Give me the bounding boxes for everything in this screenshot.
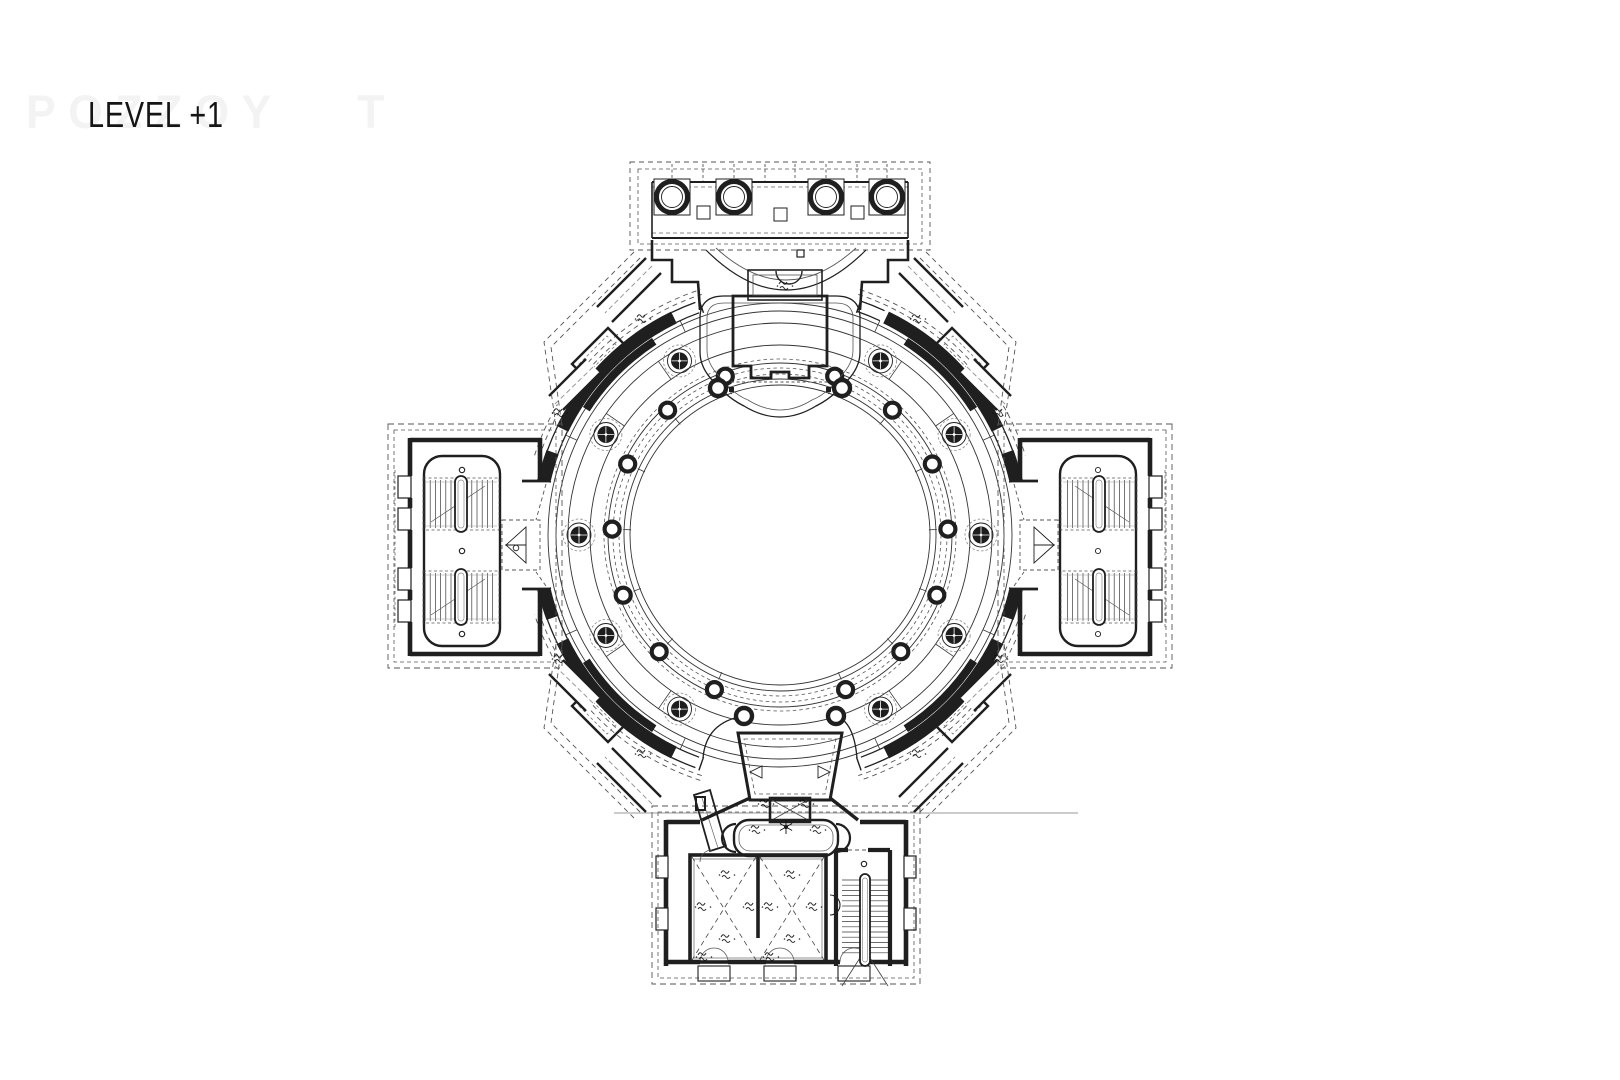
marker-dot xyxy=(719,938,721,940)
passage-splay-dashed xyxy=(536,484,546,586)
rosette-column xyxy=(590,419,622,451)
marker-dot xyxy=(992,658,994,660)
drum-end-cap xyxy=(699,757,704,770)
marker-dot xyxy=(567,658,569,660)
marker-dot xyxy=(821,906,823,908)
marker-dot xyxy=(992,412,994,414)
rosette-center xyxy=(953,433,956,436)
inter-column-pier xyxy=(697,206,710,219)
inner-ring-column xyxy=(940,522,955,537)
rosette-center xyxy=(578,534,581,537)
rosette-center xyxy=(605,634,608,637)
marker-squiggle xyxy=(764,903,772,906)
portico-column xyxy=(869,179,905,215)
gallery-ring xyxy=(556,311,1004,759)
west-stair-wing xyxy=(388,424,562,668)
rosette-column xyxy=(664,693,696,725)
level-marker xyxy=(910,750,927,758)
radial-joint xyxy=(919,588,927,591)
reference-mark xyxy=(459,467,465,473)
marker-dot xyxy=(806,906,808,908)
entrance-pedestal xyxy=(797,250,804,257)
marker-dot xyxy=(910,753,912,755)
level-marker xyxy=(635,315,652,323)
level-marker xyxy=(806,903,823,911)
marker-dot xyxy=(799,874,801,876)
radial-joint xyxy=(566,630,577,635)
radial-joint xyxy=(719,672,722,679)
portico-columns xyxy=(654,179,905,221)
rosette-column xyxy=(938,620,970,652)
inter-column-pier xyxy=(851,206,864,219)
inner-ring-column xyxy=(660,403,675,418)
portico-column xyxy=(808,179,844,215)
drum-window-bay xyxy=(861,748,884,758)
reference-mark xyxy=(513,545,519,551)
radial-joint xyxy=(936,413,954,426)
inner-ring-column xyxy=(885,403,900,418)
reference-mark xyxy=(459,548,465,554)
marker-squiggle xyxy=(698,908,706,911)
rosette-column xyxy=(865,693,897,725)
drum-roof-dashed xyxy=(858,294,1020,456)
level-marker xyxy=(719,871,736,879)
inner-ring-column xyxy=(929,588,944,603)
radial-joint xyxy=(658,691,671,709)
marker-squiggle xyxy=(786,935,794,938)
marker-squiggle xyxy=(721,871,729,874)
wing-wall-fins xyxy=(750,766,830,778)
marker-dot xyxy=(552,658,554,660)
marker-squiggle xyxy=(808,903,816,906)
marker-dot xyxy=(1007,412,1009,414)
neck-cross-brace xyxy=(772,800,808,820)
marker-dot xyxy=(758,803,760,805)
drum-window-bay xyxy=(676,748,699,758)
north-porch-recess-inner xyxy=(753,275,817,295)
gallery-ring xyxy=(630,385,930,685)
stair-flight xyxy=(842,874,888,986)
radial-joint xyxy=(566,435,577,440)
gallery-ring xyxy=(590,345,970,725)
inner-ring-column xyxy=(838,682,853,697)
inner-ring-column xyxy=(620,457,635,472)
reference-mark xyxy=(459,631,465,637)
gallery-ring xyxy=(568,323,992,747)
radial-joint xyxy=(606,413,624,426)
stair-stringer xyxy=(455,569,467,625)
drawing-sheet: POZZOY T LEVEL +1 xyxy=(0,0,1620,1080)
column-block xyxy=(729,387,734,392)
rosette-center xyxy=(678,708,681,711)
inner-ring-column xyxy=(893,644,908,659)
marker-dot xyxy=(758,906,760,908)
wing-roof-dashed-inner xyxy=(394,430,556,662)
marker-squiggle xyxy=(554,409,562,412)
radial-joint xyxy=(667,639,673,645)
radial-joint xyxy=(983,630,994,635)
radial-joint xyxy=(889,691,902,709)
level-marker xyxy=(719,935,736,943)
marker-squiggle xyxy=(745,903,753,906)
marker-squiggle xyxy=(555,414,563,417)
level-marker xyxy=(810,826,827,834)
marker-squiggle xyxy=(638,755,646,758)
portico-column xyxy=(654,179,690,215)
marker-dot xyxy=(784,874,786,876)
marker-dot xyxy=(778,956,780,958)
level-marker xyxy=(762,903,779,911)
drum-window-bay xyxy=(993,616,1003,639)
window-bay xyxy=(904,908,916,930)
marker-dot xyxy=(635,318,637,320)
marker-squiggle xyxy=(787,940,795,943)
south-wing xyxy=(614,790,1078,986)
marker-squiggle xyxy=(722,940,730,943)
marker-dot xyxy=(799,938,801,940)
level-marker xyxy=(763,953,780,961)
radial-joint xyxy=(875,321,880,332)
rosette-center xyxy=(980,534,983,537)
rosette-center xyxy=(605,433,608,436)
marker-dot xyxy=(695,906,697,908)
vestibule-column xyxy=(828,708,844,724)
vestibule-column xyxy=(736,708,752,724)
marker-squiggle xyxy=(912,750,920,753)
marker-dot xyxy=(825,829,827,831)
marker-dot xyxy=(1007,658,1009,660)
marker-dot xyxy=(810,829,812,831)
inner-ring-column xyxy=(652,644,667,659)
drum-window-bay xyxy=(993,431,1003,454)
level-marker xyxy=(696,953,713,961)
marker-dot xyxy=(734,938,736,940)
radial-joint xyxy=(983,435,994,440)
drum-wall-segment xyxy=(1007,452,1015,480)
stair-flights xyxy=(423,467,499,636)
rosette-center xyxy=(953,634,956,637)
drum-wall-segment xyxy=(544,452,552,480)
marker-squiggle xyxy=(752,831,760,834)
marker-squiggle xyxy=(813,831,821,834)
marker-dot xyxy=(798,803,800,805)
marker-dot xyxy=(711,956,713,958)
marker-dot xyxy=(650,318,652,320)
rosette-center xyxy=(678,360,681,363)
corridor-floor xyxy=(597,258,661,322)
stair-stringer xyxy=(860,874,870,966)
column-block xyxy=(826,387,831,392)
marker-squiggle xyxy=(809,908,817,911)
marker-squiggle xyxy=(786,871,794,874)
marker-dot xyxy=(784,938,786,940)
stair-flight xyxy=(423,476,499,532)
drum-window-bay xyxy=(861,301,885,311)
funnel-outer-wall xyxy=(700,296,860,417)
gallery-ring xyxy=(624,379,936,691)
rosette-column xyxy=(938,419,970,451)
marker-dot xyxy=(710,906,712,908)
window-bay xyxy=(398,476,411,498)
south-stair xyxy=(842,874,888,986)
marker-dot xyxy=(734,874,736,876)
door-arcs xyxy=(700,948,868,962)
inner-ring-column xyxy=(925,457,940,472)
marker-dot xyxy=(813,803,815,805)
drum-roof-dashed xyxy=(539,294,701,456)
marker-squiggle xyxy=(787,876,795,879)
marker-dot xyxy=(696,956,698,958)
rosette-column xyxy=(664,345,696,377)
radial-joint xyxy=(936,644,954,657)
marker-dot xyxy=(777,285,779,287)
drum-wall-segment xyxy=(1007,589,1015,617)
radial-joint xyxy=(638,469,645,472)
exterior-steps xyxy=(698,966,730,981)
rosette-column xyxy=(865,345,897,377)
marker-dot xyxy=(763,956,765,958)
radial-joint xyxy=(680,321,685,332)
marker-squiggle xyxy=(780,287,788,290)
window-bay xyxy=(656,856,668,878)
marker-dot xyxy=(650,753,652,755)
drum-roof-dashed xyxy=(858,613,1020,775)
exterior-steps xyxy=(764,966,796,981)
marker-dot xyxy=(910,318,912,320)
marker-squiggle xyxy=(697,903,705,906)
rosette-center xyxy=(879,708,882,711)
radial-joint xyxy=(875,738,880,749)
portico-grid-lines xyxy=(672,164,887,181)
north-lobby xyxy=(733,296,827,378)
rotunda-colonnade xyxy=(563,345,997,725)
level-marker xyxy=(695,903,712,911)
drum-window-bay xyxy=(558,431,568,454)
radial-joint xyxy=(633,588,641,591)
drum-window-bay xyxy=(672,758,696,768)
radial-joint xyxy=(658,361,671,379)
portico-column xyxy=(716,179,752,215)
marker-dot xyxy=(635,753,637,755)
radial-joint xyxy=(889,361,902,379)
stair-flight xyxy=(423,569,499,625)
rosette-center xyxy=(879,360,882,363)
marker-dot xyxy=(777,906,779,908)
drum-window-bay xyxy=(676,313,699,323)
marker-dot xyxy=(743,906,745,908)
marker-dot xyxy=(762,906,764,908)
marker-dot xyxy=(925,318,927,320)
marker-dot xyxy=(764,829,766,831)
radial-joint xyxy=(880,418,885,424)
radial-joint xyxy=(838,672,841,679)
marker-squiggle xyxy=(721,935,729,938)
level-marker xyxy=(784,871,801,879)
radial-joint xyxy=(606,644,624,657)
level-marker xyxy=(784,935,801,943)
drum-window-bay xyxy=(865,758,889,768)
rosette-column xyxy=(590,620,622,652)
drum-window-bay xyxy=(672,302,696,312)
floor-plan-level-plus-1 xyxy=(0,0,1620,1080)
level-marker xyxy=(749,826,766,834)
marker-squiggle xyxy=(751,826,759,829)
inter-column-pier xyxy=(774,208,787,221)
marker-squiggle xyxy=(912,315,920,318)
radial-joint xyxy=(887,639,893,645)
level-marker xyxy=(910,315,927,323)
marker-squiggle xyxy=(746,908,754,911)
marker-dot xyxy=(552,412,554,414)
marker-squiggle xyxy=(913,755,921,758)
drum-window-bay xyxy=(558,616,568,639)
marker-squiggle xyxy=(812,826,820,829)
marker-squiggle xyxy=(722,876,730,879)
vestibule-column xyxy=(834,380,850,396)
south-vestibule xyxy=(703,708,857,856)
wing-roof-dashed xyxy=(388,424,562,668)
marker-dot xyxy=(749,829,751,831)
radial-joint xyxy=(680,738,685,749)
east-stair-wing xyxy=(998,424,1172,668)
inner-ring-column xyxy=(605,522,620,537)
radial-joint xyxy=(915,469,922,472)
marker-dot xyxy=(567,412,569,414)
drum-roof-dashed xyxy=(539,613,701,775)
inner-ring-column xyxy=(707,682,722,697)
inner-ring-column xyxy=(616,588,631,603)
marker-dot xyxy=(773,803,775,805)
drum-wall-segment xyxy=(544,589,552,617)
north-vestibule xyxy=(700,270,860,417)
window-bay xyxy=(398,600,411,622)
window-bay xyxy=(398,508,411,530)
marker-dot xyxy=(792,285,794,287)
radial-joint xyxy=(675,418,680,424)
marker-dot xyxy=(925,753,927,755)
marker-squiggle xyxy=(765,908,773,911)
exterior-steps xyxy=(838,966,870,981)
reference-mark xyxy=(861,861,867,867)
marker-dot xyxy=(719,874,721,876)
window-bay xyxy=(398,568,411,590)
vestibule-column xyxy=(710,380,726,396)
stair-stringer xyxy=(455,476,467,532)
drum-end-cap xyxy=(857,757,862,770)
